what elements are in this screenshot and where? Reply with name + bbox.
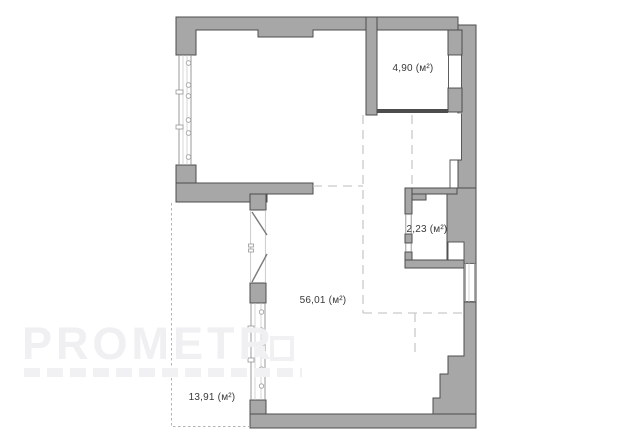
room223-wall-left-b — [405, 234, 412, 243]
window-east — [465, 263, 476, 302]
wall-niche-bottom — [448, 88, 462, 112]
watermark: PROMETR — [22, 318, 302, 373]
wall-partition-top — [366, 17, 377, 115]
room-label-13-91: 13,91 (м²) — [189, 392, 236, 403]
wall-room490-bottom — [377, 109, 448, 113]
wall-bottom — [250, 414, 476, 428]
wall-door-jamb — [250, 194, 266, 210]
watermark-text: PROMETR — [22, 318, 275, 369]
room-label-56-01: 56,01 (м²) — [300, 295, 347, 306]
room223-corner-notch — [412, 194, 426, 200]
room223-wall-top — [405, 188, 457, 194]
room223-wall-left-a — [405, 188, 412, 214]
niche-room490 — [449, 55, 462, 88]
room-label-2-23: 2,23 (м²) — [407, 224, 448, 235]
wall-niche-top — [448, 30, 462, 55]
floor-plan-page: 4,90 (м²) 2,23 (м²) 56,01 (м²) 13,91 (м²… — [0, 0, 635, 442]
niche-room223 — [448, 242, 464, 260]
watermark-dot — [254, 346, 265, 357]
wall-west-pier — [250, 283, 266, 303]
room-label-4-90: 4,90 (м²) — [393, 63, 434, 74]
room223-wall-bottom — [405, 260, 464, 268]
floor-plan-svg: 4,90 (м²) 2,23 (м²) 56,01 (м²) 13,91 (м²… — [0, 0, 635, 442]
